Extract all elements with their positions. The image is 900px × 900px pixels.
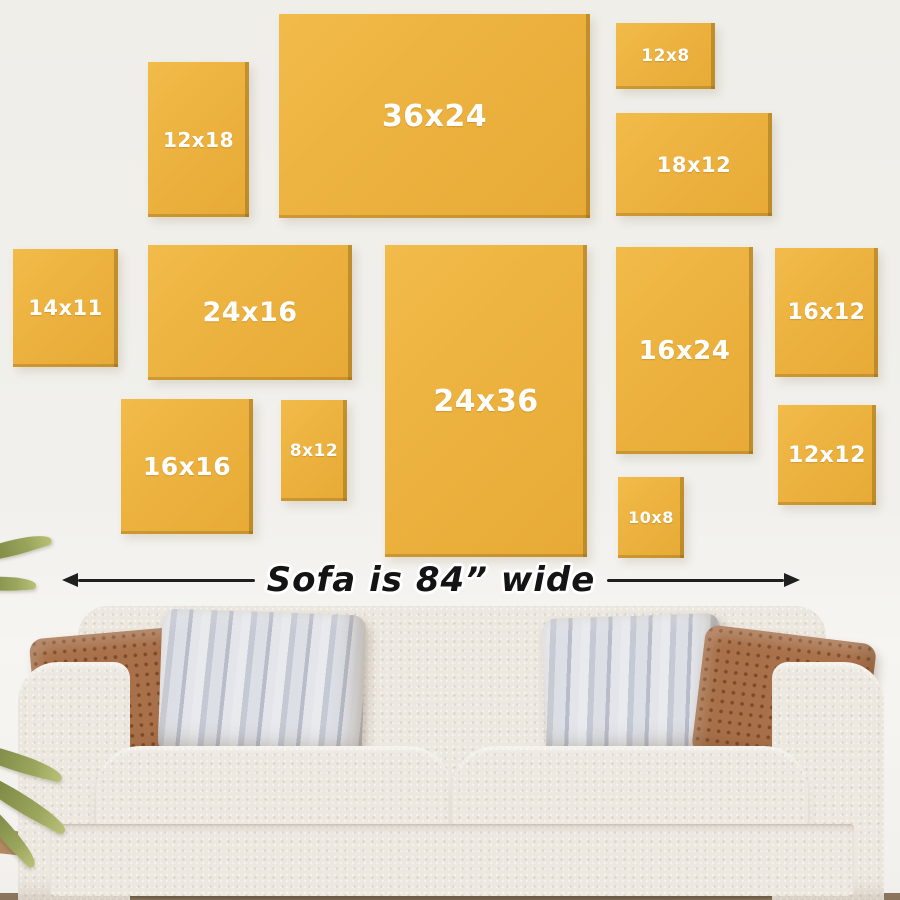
canvas-frame-16x16: 16x16 (121, 399, 253, 534)
frame-size-label: 36x24 (382, 99, 487, 134)
frame-size-label: 16x12 (788, 300, 866, 325)
frame-size-label: 16x16 (143, 452, 231, 481)
frame-size-label: 12x12 (788, 443, 866, 468)
canvas-frame-24x36: 24x36 (385, 245, 587, 557)
canvas-frame-16x24: 16x24 (616, 247, 753, 454)
canvas-frame-8x12: 8x12 (281, 400, 347, 501)
measure-line-left (78, 579, 255, 582)
canvas-frame-12x18: 12x18 (148, 62, 249, 217)
canvas-frame-12x12: 12x12 (778, 405, 876, 505)
measure-label: Sofa is 84” wide (255, 560, 608, 600)
canvas-frame-14x11: 14x11 (13, 249, 118, 367)
frame-size-label: 24x16 (202, 297, 297, 328)
canvas-frame-16x12: 16x12 (775, 248, 878, 377)
canvas-frame-36x24: 36x24 (279, 14, 590, 218)
canvas-frame-10x8: 10x8 (618, 477, 684, 558)
canvas-frame-18x12: 18x12 (616, 113, 772, 216)
wall-art-size-guide: 12x1836x2412x818x1214x1124x1624x3616x241… (0, 0, 900, 900)
frame-size-label: 12x8 (641, 46, 689, 66)
measure-line-right (607, 579, 784, 582)
canvas-frame-12x8: 12x8 (616, 23, 715, 89)
frame-size-label: 18x12 (657, 153, 732, 177)
left-arrowhead-icon (62, 573, 78, 587)
canvas-frame-24x16: 24x16 (148, 245, 352, 380)
frame-size-label: 16x24 (639, 336, 731, 366)
frame-size-label: 8x12 (290, 441, 338, 461)
frame-size-label: 10x8 (628, 508, 674, 527)
sofa-floor-shadow (40, 892, 864, 900)
frame-size-label: 14x11 (28, 296, 103, 320)
frames-layer: 12x1836x2412x818x1214x1124x1624x3616x241… (0, 0, 900, 900)
sofa-width-measure: Sofa is 84” wide (62, 556, 800, 604)
frame-size-label: 24x36 (433, 384, 538, 419)
right-arrowhead-icon (784, 573, 800, 587)
frame-size-label: 12x18 (163, 128, 234, 152)
